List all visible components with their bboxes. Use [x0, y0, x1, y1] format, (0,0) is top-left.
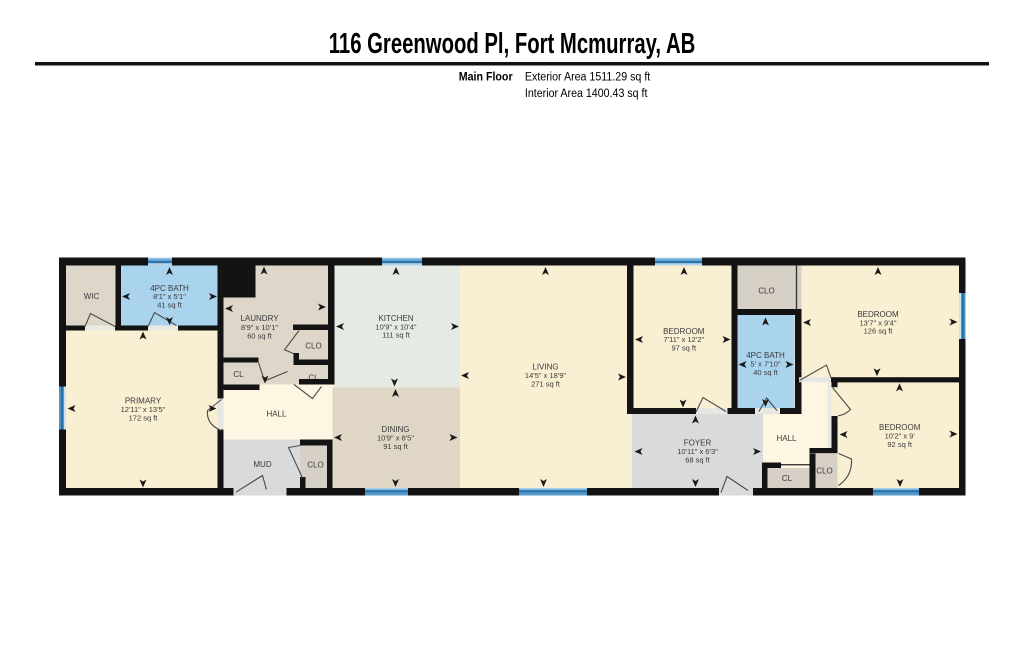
svg-text:92 sq ft: 92 sq ft — [887, 440, 913, 449]
svg-text:CLO: CLO — [307, 460, 323, 469]
svg-text:CL: CL — [782, 474, 793, 483]
svg-text:CL: CL — [233, 370, 244, 379]
svg-text:HALL: HALL — [266, 410, 287, 419]
svg-text:LAUNDRY: LAUNDRY — [240, 314, 279, 323]
svg-text:MUD: MUD — [253, 460, 271, 469]
svg-text:LIVING: LIVING — [532, 362, 558, 371]
svg-text:271 sq ft: 271 sq ft — [531, 379, 561, 388]
svg-text:PRIMARY: PRIMARY — [125, 396, 162, 405]
svg-text:60 sq ft: 60 sq ft — [247, 331, 273, 340]
svg-text:111 sq ft: 111 sq ft — [382, 331, 411, 340]
svg-text:41 sq ft: 41 sq ft — [157, 300, 183, 309]
svg-text:4PC BATH: 4PC BATH — [746, 351, 785, 360]
svg-text:Interior Area 1400.43 sq ft: Interior Area 1400.43 sq ft — [525, 88, 648, 100]
svg-text:Exterior Area 1511.29 sq ft: Exterior Area 1511.29 sq ft — [525, 71, 651, 83]
svg-text:172 sq ft: 172 sq ft — [129, 413, 159, 422]
svg-text:HALL: HALL — [776, 434, 797, 443]
svg-text:40 sq ft: 40 sq ft — [753, 368, 779, 377]
svg-text:Main Floor: Main Floor — [459, 71, 513, 83]
svg-text:CLO: CLO — [816, 467, 832, 476]
svg-text:68 sq ft: 68 sq ft — [685, 455, 711, 464]
svg-text:116 Greenwood Pl, Fort Mcmurra: 116 Greenwood Pl, Fort Mcmurray, AB — [329, 29, 696, 60]
svg-text:97 sq ft: 97 sq ft — [671, 343, 697, 352]
svg-text:CLO: CLO — [305, 341, 321, 350]
svg-text:126 sq ft: 126 sq ft — [864, 327, 894, 336]
svg-text:WIC: WIC — [84, 292, 100, 301]
svg-text:CLO: CLO — [758, 286, 774, 295]
svg-text:91 sq ft: 91 sq ft — [383, 442, 409, 451]
